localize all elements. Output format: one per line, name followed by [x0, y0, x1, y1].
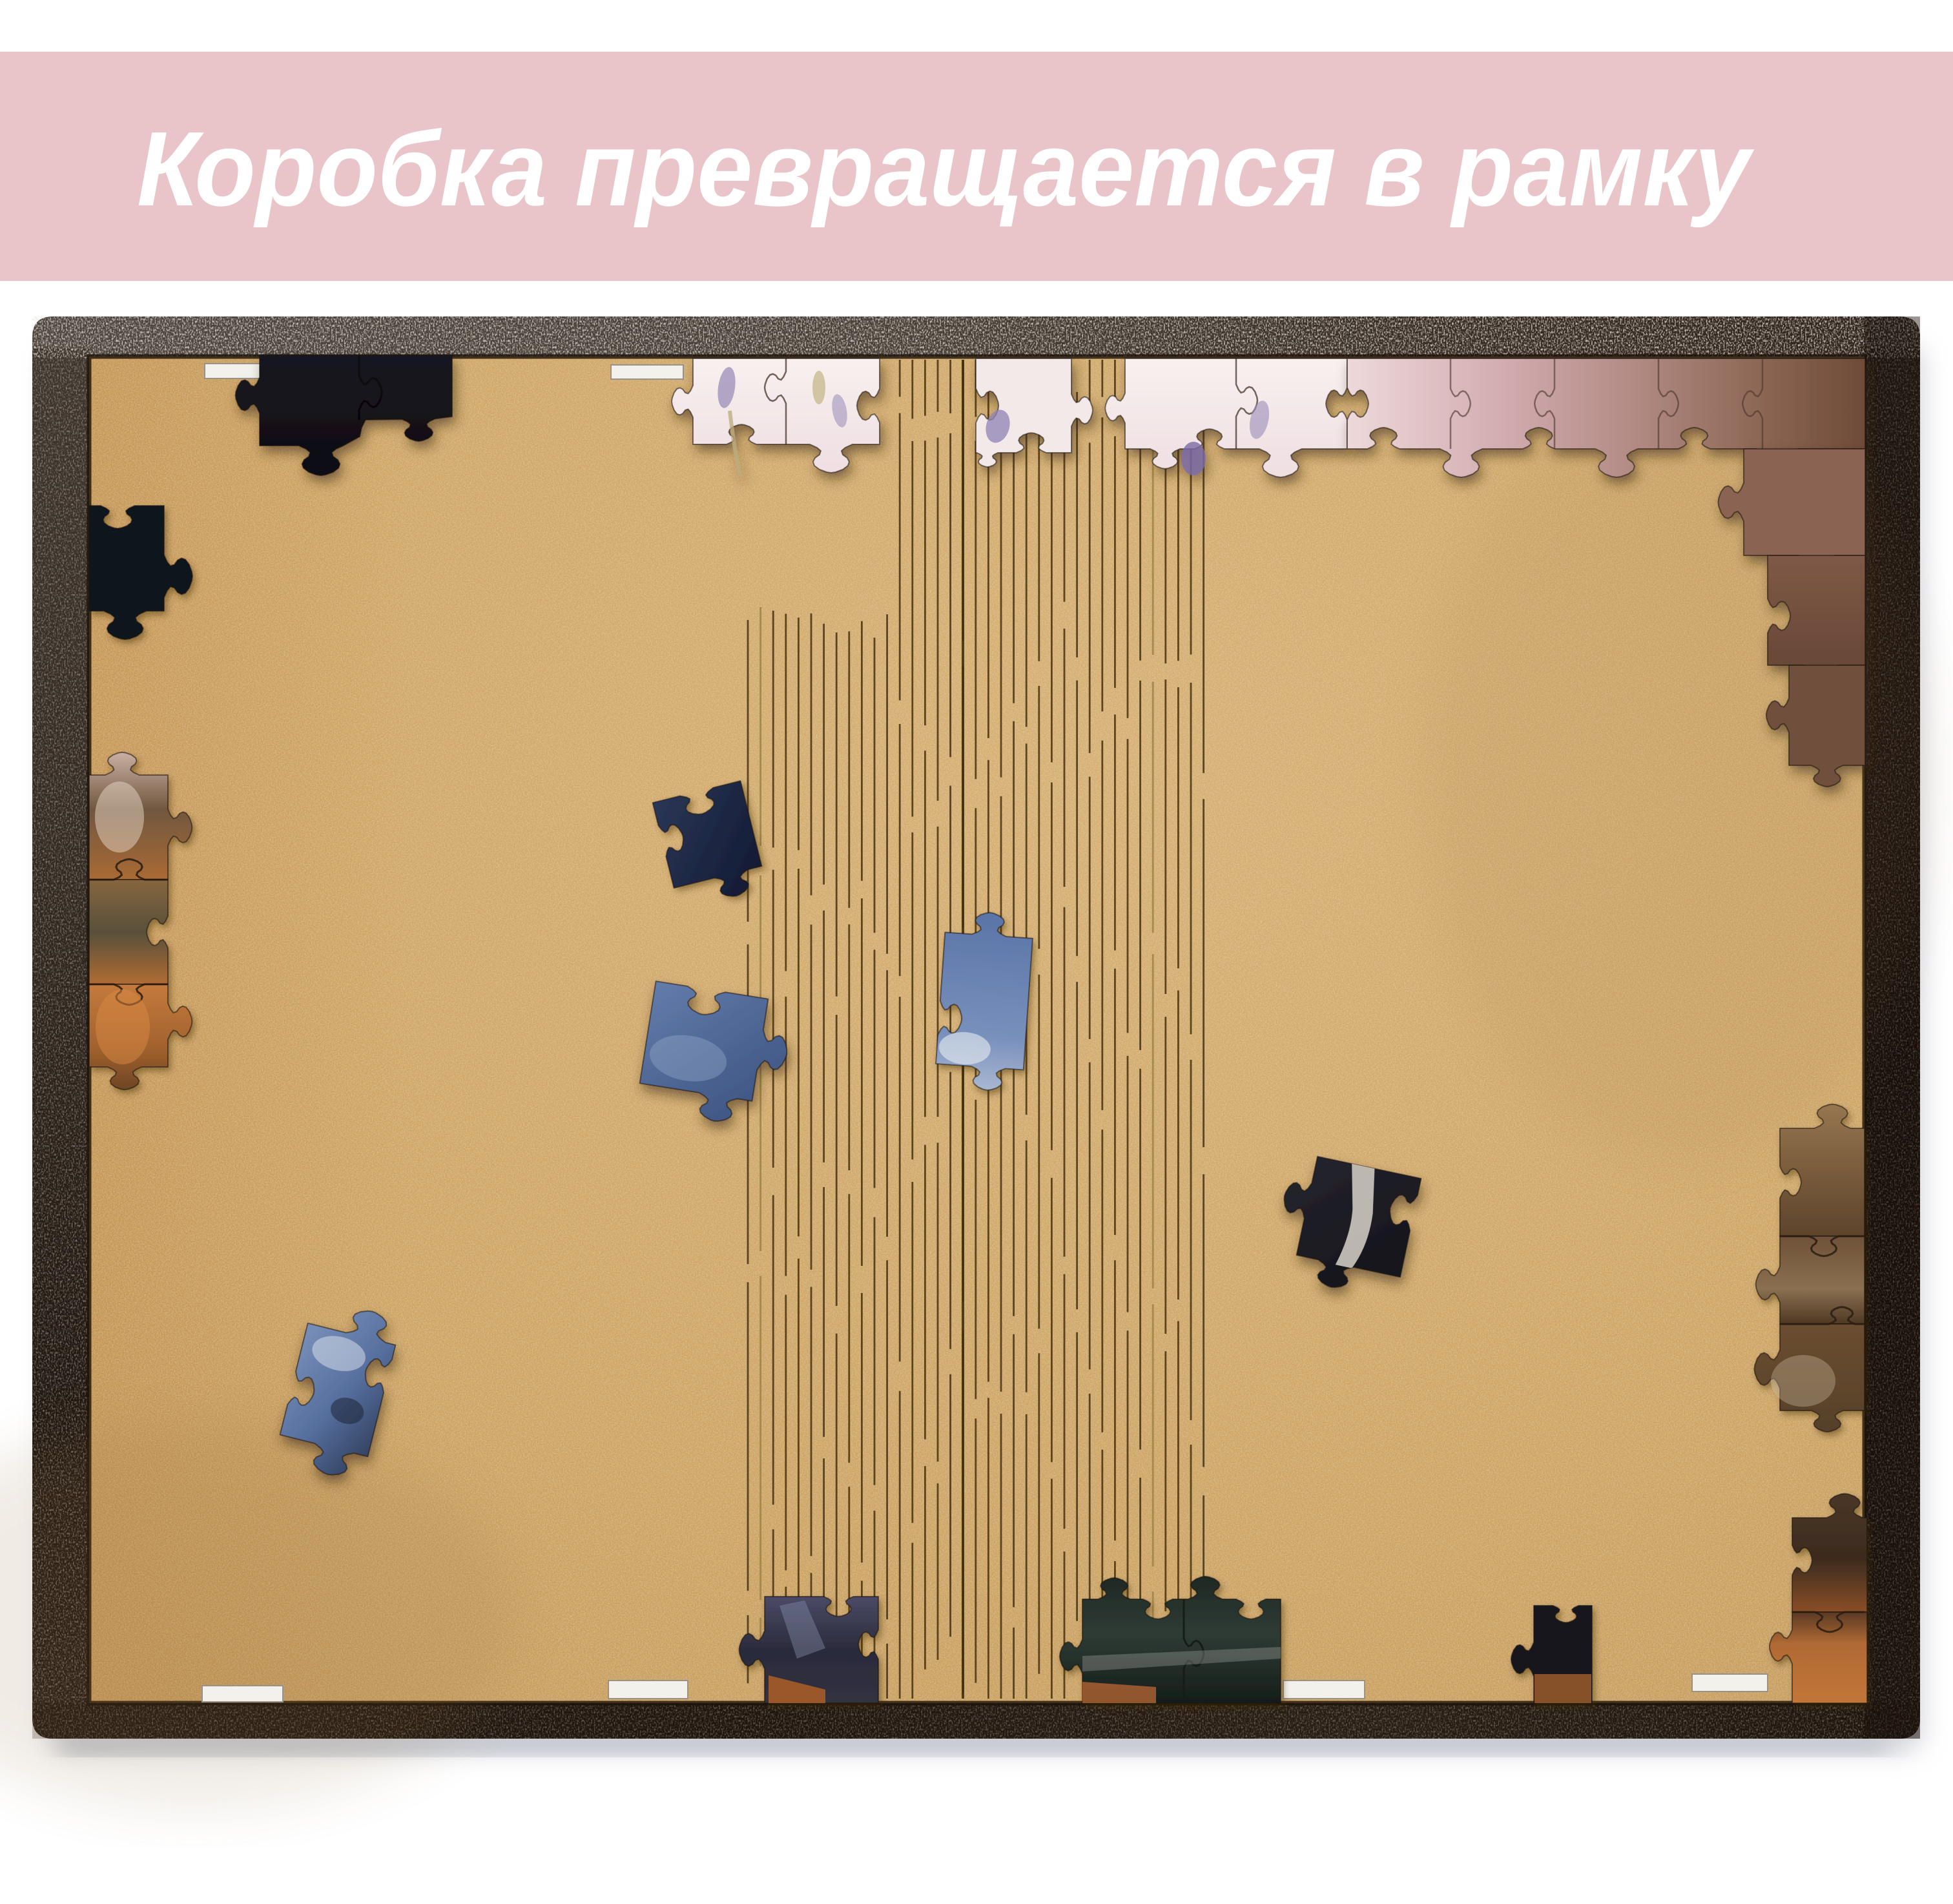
svg-text:Коробка превращается в рамку: Коробка превращается в рамку [137, 110, 1755, 228]
